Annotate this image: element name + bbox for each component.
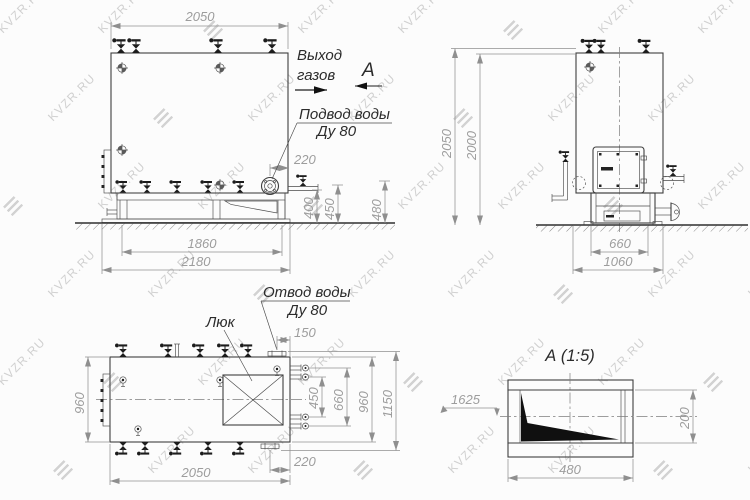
plan-top-valves: [115, 344, 252, 357]
dim-plan-stub-span: 450: [306, 387, 321, 409]
label-manhole: Люк: [205, 314, 236, 331]
label-section-title: А (1:5): [544, 347, 595, 365]
plan-dimensions: 960 150 450 660 960 1150 220: [72, 325, 400, 485]
dim-section-elevation: 1625: [451, 392, 481, 407]
label-gas-outlet-line2: газов: [297, 67, 335, 84]
dim-front-supply-offset: 220: [293, 152, 316, 167]
side-drain-pipe: [552, 150, 569, 202]
section-duct-outline: [508, 380, 633, 457]
label-water-supply: Подвод воды: [299, 106, 390, 123]
water-supply-flange: [258, 174, 282, 198]
dim-side-body-height: 2000: [464, 130, 479, 161]
label-water-drain-dn: Ду 80: [286, 302, 328, 319]
dim-front-h450: 450: [322, 198, 337, 220]
side-flanged-pipe: [655, 203, 680, 221]
dim-plan-drain-offset: 150: [294, 325, 316, 340]
section-cut-arrow-icon: [355, 83, 382, 90]
label-section-mark: А: [361, 60, 375, 81]
dim-front-length: 2050: [185, 9, 216, 24]
benchmark-icon: [214, 62, 226, 74]
front-dimensions: 2050 220 400 450 480 1860 2180: [102, 9, 390, 274]
dim-plan-width-left: 960: [72, 392, 87, 414]
door-handle: [601, 167, 613, 171]
dim-front-h400: 400: [301, 197, 316, 219]
plan-valve: [120, 377, 126, 387]
front-base-frame: [102, 193, 290, 223]
dim-plan-supply-offset: 220: [293, 454, 316, 469]
front-bottom-valves: [115, 180, 244, 193]
manhole-hatch: [223, 375, 283, 425]
dim-section-width: 480: [559, 462, 581, 477]
dim-front-base-inner: 1860: [188, 236, 218, 251]
side-dimensions: 2050 2000 660 1060: [439, 49, 663, 275]
water-drain-flange: [268, 351, 286, 358]
ground-line: [75, 223, 395, 230]
benchmark-icon: [116, 144, 128, 156]
dim-front-h480: 480: [369, 199, 384, 221]
benchmark-icon: [116, 62, 128, 74]
drawing-sheet: 2050 220 400 450 480 1860 2180: [0, 0, 750, 500]
side-top-valves: [581, 39, 651, 53]
front-left-plate: [102, 150, 112, 193]
plan-valve: [274, 366, 280, 376]
dim-plan-length: 2050: [181, 465, 212, 480]
ground-line: [536, 225, 748, 232]
plan-valve: [135, 426, 141, 436]
dim-side-overall-height: 2050: [439, 128, 454, 159]
label-water-drain: Отвод воды: [263, 284, 351, 301]
section-view: А (1:5) 1625 200 480: [441, 347, 698, 482]
plan-left-plate: [101, 374, 111, 426]
dim-section-height: 200: [677, 407, 692, 430]
furnace-base: [584, 193, 662, 225]
dim-front-base-outer: 2180: [181, 254, 212, 269]
plan-valve: [217, 377, 223, 387]
dim-plan-overall-width: 1150: [380, 389, 395, 418]
boiler-technical-drawing: KVZR.RUKVZR.RUKVZR.RUKVZR.RUKVZR.RUKVZR.…: [0, 0, 750, 500]
front-view: 2050 220 400 450 480 1860 2180: [75, 9, 395, 274]
plan-bottom-flange: [261, 443, 279, 450]
front-body-outline: [111, 53, 288, 193]
dim-plan-width-right: 960: [356, 391, 371, 413]
side-view: 2050 2000 660 1060: [439, 39, 748, 274]
benchmark-icon: [214, 179, 226, 191]
label-water-supply-dn: Ду 80: [315, 123, 357, 140]
label-gas-outlet-line1: Выход: [297, 47, 342, 64]
dim-side-base-overall: 1060: [604, 254, 634, 269]
gas-flow-arrow-icon: [295, 86, 327, 94]
dim-side-base-width: 660: [609, 236, 631, 251]
benchmark-icon: [584, 61, 596, 73]
dim-plan-stub-outer: 660: [331, 389, 346, 411]
plan-view: Люк: [72, 284, 400, 485]
lifting-pad: [573, 177, 586, 190]
front-top-valves: [112, 38, 276, 53]
plan-bottom-valves: [115, 442, 244, 455]
side-right-valve: [663, 164, 684, 183]
